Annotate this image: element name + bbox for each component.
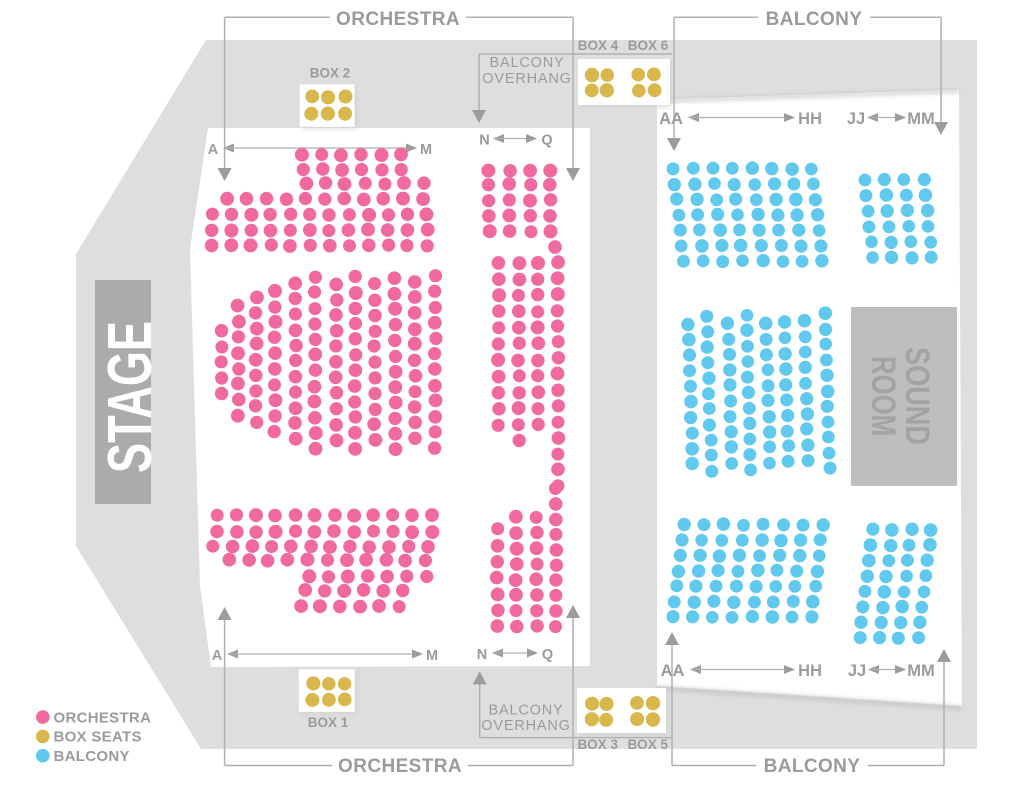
- svg-text:BALCONY: BALCONY: [489, 703, 564, 719]
- svg-text:ORCHESTRA: ORCHESTRA: [54, 709, 152, 726]
- svg-text:OVERHANG: OVERHANG: [481, 718, 570, 734]
- svg-text:A: A: [208, 142, 219, 158]
- svg-text:HH: HH: [798, 662, 822, 680]
- svg-text:ORCHESTRA: ORCHESTRA: [338, 756, 462, 777]
- svg-text:AA: AA: [659, 110, 683, 128]
- svg-text:BOX 6: BOX 6: [628, 38, 669, 53]
- svg-text:AA: AA: [661, 662, 685, 680]
- svg-text:M: M: [426, 648, 438, 664]
- svg-text:BOX 4: BOX 4: [578, 38, 619, 53]
- svg-text:BOX 5: BOX 5: [627, 737, 668, 752]
- svg-text:ROOM: ROOM: [864, 356, 902, 436]
- svg-text:N: N: [479, 133, 489, 149]
- svg-text:BOX 1: BOX 1: [308, 715, 349, 730]
- svg-text:M: M: [420, 142, 432, 158]
- svg-text:STAGE: STAGE: [96, 321, 165, 473]
- svg-text:BALCONY: BALCONY: [490, 55, 565, 71]
- svg-text:BALCONY: BALCONY: [764, 756, 861, 777]
- svg-text:ORCHESTRA: ORCHESTRA: [336, 9, 460, 30]
- svg-text:SOUND: SOUND: [898, 347, 936, 445]
- svg-text:MM: MM: [907, 662, 935, 680]
- svg-text:JJ: JJ: [848, 662, 866, 680]
- svg-text:N: N: [477, 647, 487, 663]
- svg-text:BOX 3: BOX 3: [577, 737, 618, 752]
- svg-text:OVERHANG: OVERHANG: [482, 71, 571, 87]
- svg-text:HH: HH: [798, 110, 822, 128]
- svg-text:Q: Q: [541, 133, 552, 149]
- svg-text:MM: MM: [907, 110, 935, 128]
- svg-text:Q: Q: [542, 647, 553, 663]
- svg-text:JJ: JJ: [847, 110, 865, 128]
- svg-text:BOX SEATS: BOX SEATS: [54, 729, 142, 746]
- svg-text:BOX 2: BOX 2: [310, 66, 351, 81]
- svg-text:A: A: [212, 648, 223, 664]
- svg-text:BALCONY: BALCONY: [54, 748, 130, 765]
- svg-text:BALCONY: BALCONY: [766, 9, 863, 30]
